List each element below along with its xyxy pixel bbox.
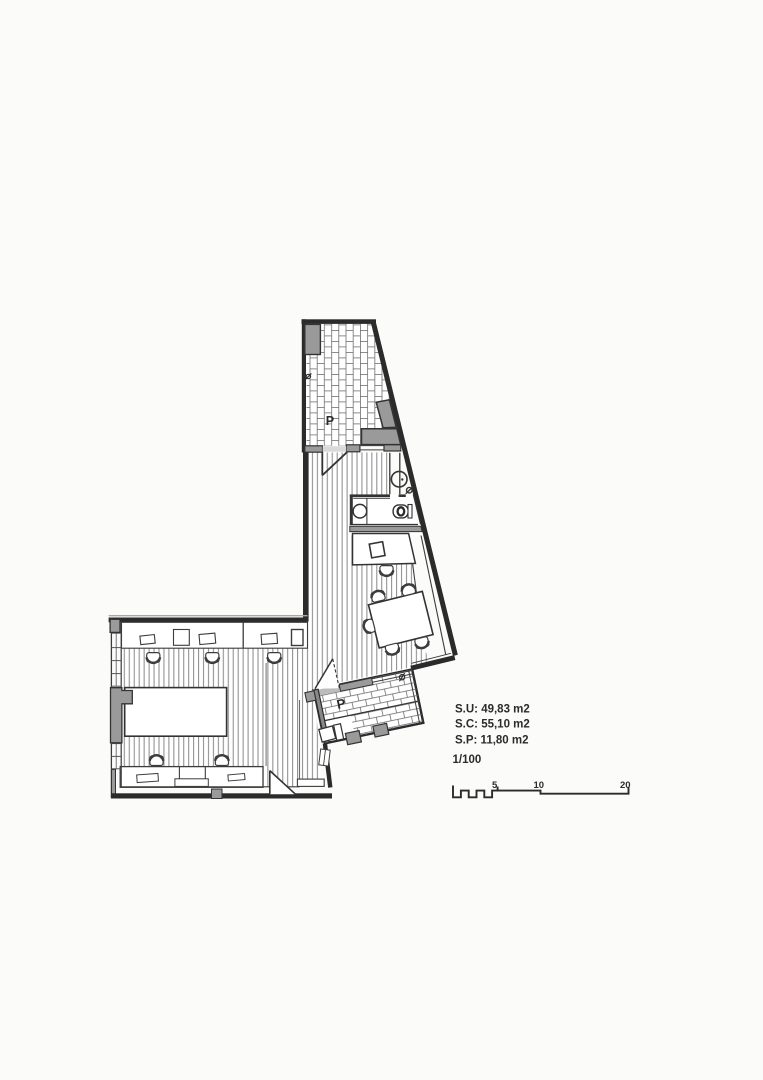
svg-text:20: 20 [620, 780, 631, 791]
svg-text:S.P: 11,80 m2: S.P: 11,80 m2 [455, 734, 529, 746]
svg-text:S.U: 49,83 m2: S.U: 49,83 m2 [455, 704, 530, 716]
svg-text:S.C: 55,10 m2: S.C: 55,10 m2 [455, 719, 530, 731]
svg-text:10: 10 [534, 780, 545, 791]
svg-text:5: 5 [492, 780, 498, 791]
svg-text:P: P [326, 414, 334, 428]
svg-text:1/100: 1/100 [453, 754, 482, 766]
